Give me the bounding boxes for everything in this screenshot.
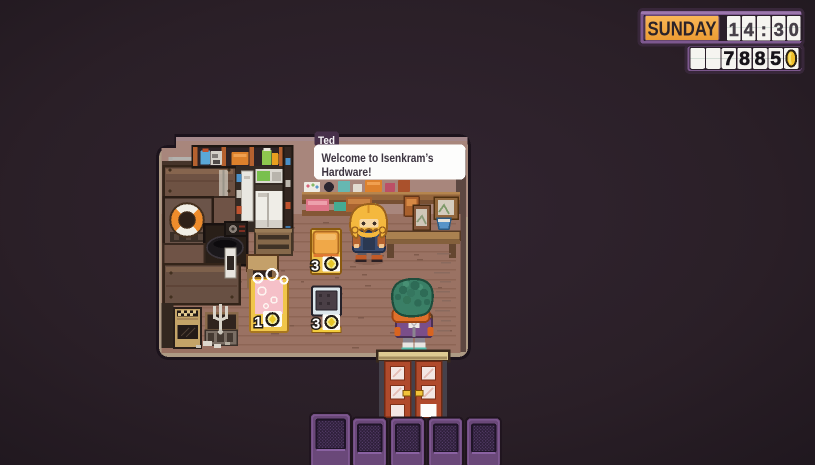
svg-text:0: 0	[789, 20, 799, 40]
svg-text:8: 8	[739, 48, 750, 70]
svg-text::: :	[761, 20, 767, 40]
svg-text:Welcome to Isenkram’s: Welcome to Isenkram’s	[322, 151, 434, 165]
svg-text:4: 4	[744, 20, 754, 40]
svg-text:5: 5	[770, 48, 781, 70]
svg-text:1: 1	[254, 314, 262, 331]
svg-text:3: 3	[311, 258, 319, 275]
svg-text:8: 8	[755, 48, 766, 70]
svg-text:1: 1	[729, 20, 739, 40]
svg-text:3: 3	[774, 20, 784, 40]
svg-text:3: 3	[312, 316, 320, 333]
svg-text:7: 7	[723, 48, 734, 70]
svg-text:Hardware!: Hardware!	[322, 165, 372, 179]
svg-text:SUNDAY: SUNDAY	[648, 19, 718, 41]
